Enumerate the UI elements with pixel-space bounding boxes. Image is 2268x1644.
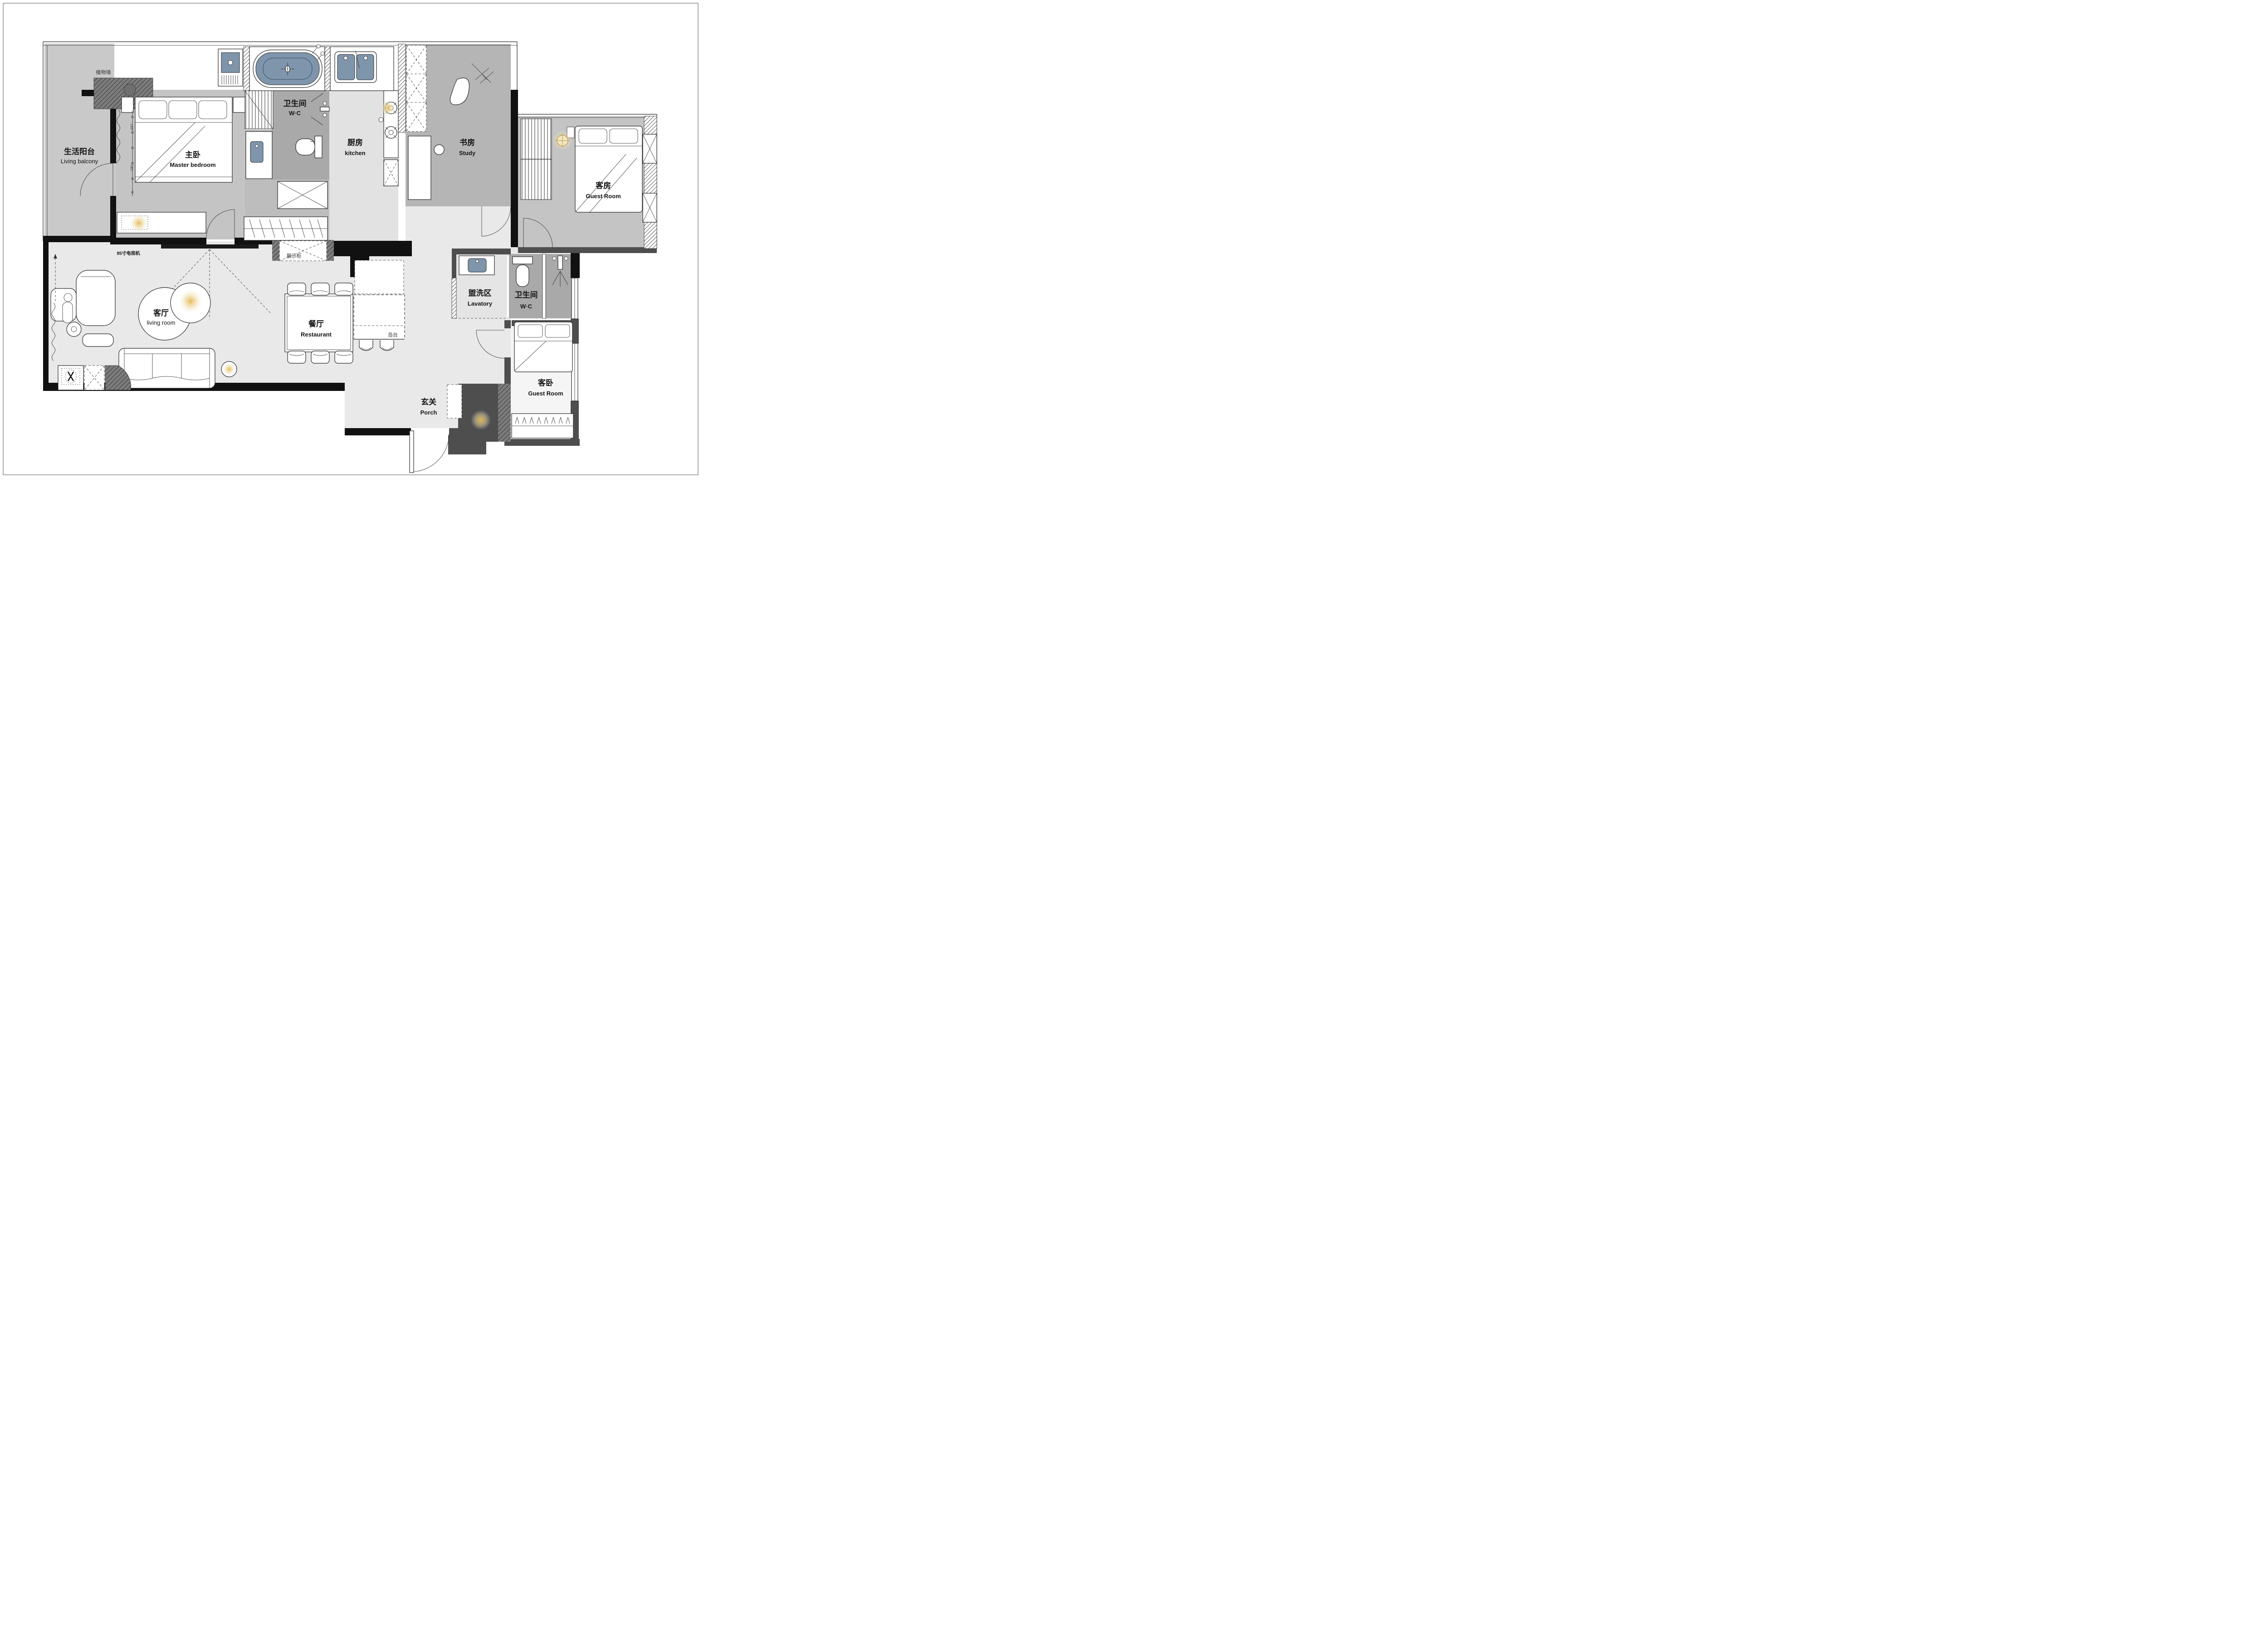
side-cabinets [58, 366, 131, 390]
pendant-lamp [221, 361, 237, 377]
guest-bedroom-label-zh: 客卧 [538, 378, 553, 387]
study-stool [434, 145, 444, 155]
living-room-label-zh: 客厅 [153, 308, 169, 317]
guest-room-label-en: Guest Room [586, 193, 621, 200]
bedroom-tv-cabinet [117, 212, 206, 233]
floor-plan-drawing: 植物墙 [0, 0, 701, 478]
restaurant-label-en: Restaurant [301, 331, 332, 338]
toilet-top [296, 136, 322, 158]
guest-room-wardrobe [521, 119, 552, 200]
washer [218, 49, 243, 86]
tv-label: 85寸电视机 [117, 250, 140, 256]
study-bookcase [406, 45, 426, 132]
led-label-1: LED [130, 124, 133, 130]
porch-label-en: Porch [420, 409, 437, 416]
study-label-zh: 书房 [459, 138, 475, 147]
study-desk [408, 136, 431, 200]
sofa [119, 348, 215, 388]
master-bedroom-label-en: Master bedroom [170, 161, 215, 168]
master-bed [135, 97, 232, 182]
tv-85inch [161, 244, 259, 249]
plant-wall-label: 植物墙 [96, 69, 111, 75]
bedroom-wardrobe [245, 91, 273, 129]
lavatory-label-zh: 盥洗区 [469, 288, 492, 298]
shoe-cabinet [447, 385, 462, 418]
wc-right-label-zh: 卫生间 [515, 290, 538, 299]
balcony-label-en: Living balcony [61, 158, 98, 165]
porch-label-zh: 玄关 [421, 397, 436, 406]
guest-bedroom-label-en: Guest Room [528, 390, 563, 397]
nightstand-left [122, 97, 133, 112]
led-label-2: LED [130, 165, 133, 171]
kitchen-sink [335, 51, 376, 83]
nightstand-right [233, 97, 245, 112]
window-shower [572, 278, 578, 319]
bathtub-area [249, 44, 325, 91]
floor-plan-page: 植物墙 [0, 0, 701, 478]
wc-top-label-en: W·C [289, 110, 301, 117]
entry-door [410, 428, 449, 473]
porch-floor [345, 383, 458, 429]
wc-right-label-en: W·C [520, 303, 533, 310]
master-bedroom-label-zh: 主卧 [185, 150, 200, 159]
wc-top-label-zh: 卫生间 [283, 99, 307, 108]
guest-bedroom-wardrobe [512, 414, 573, 438]
island-label: 岛台 [388, 332, 398, 338]
display-cabinet-label: 展示柜 [287, 253, 302, 259]
hall-south-floor [458, 317, 511, 384]
kitchen-label-en: kitchen [345, 150, 366, 156]
balcony-label-zh: 生活阳台 [64, 147, 95, 156]
tall-cabinet-dashed [355, 260, 404, 294]
lavatory-basin [459, 256, 494, 275]
guest-room-label-zh: 客房 [595, 181, 611, 190]
restaurant-label-zh: 餐厅 [308, 319, 324, 328]
guest-bedroom-lamp [471, 410, 491, 430]
display-cabinet: 展示柜 [279, 241, 327, 261]
lavatory-label-en: Lavatory [468, 300, 493, 307]
bedroom-vanity [246, 132, 272, 179]
guest-bedroom-bed [514, 322, 572, 372]
guest-room-ceiling-lamp [552, 131, 572, 151]
living-room-label-en: living room [147, 319, 176, 326]
kitchen-label-zh: 厨房 [347, 138, 363, 147]
study-label-en: Study [459, 150, 476, 156]
